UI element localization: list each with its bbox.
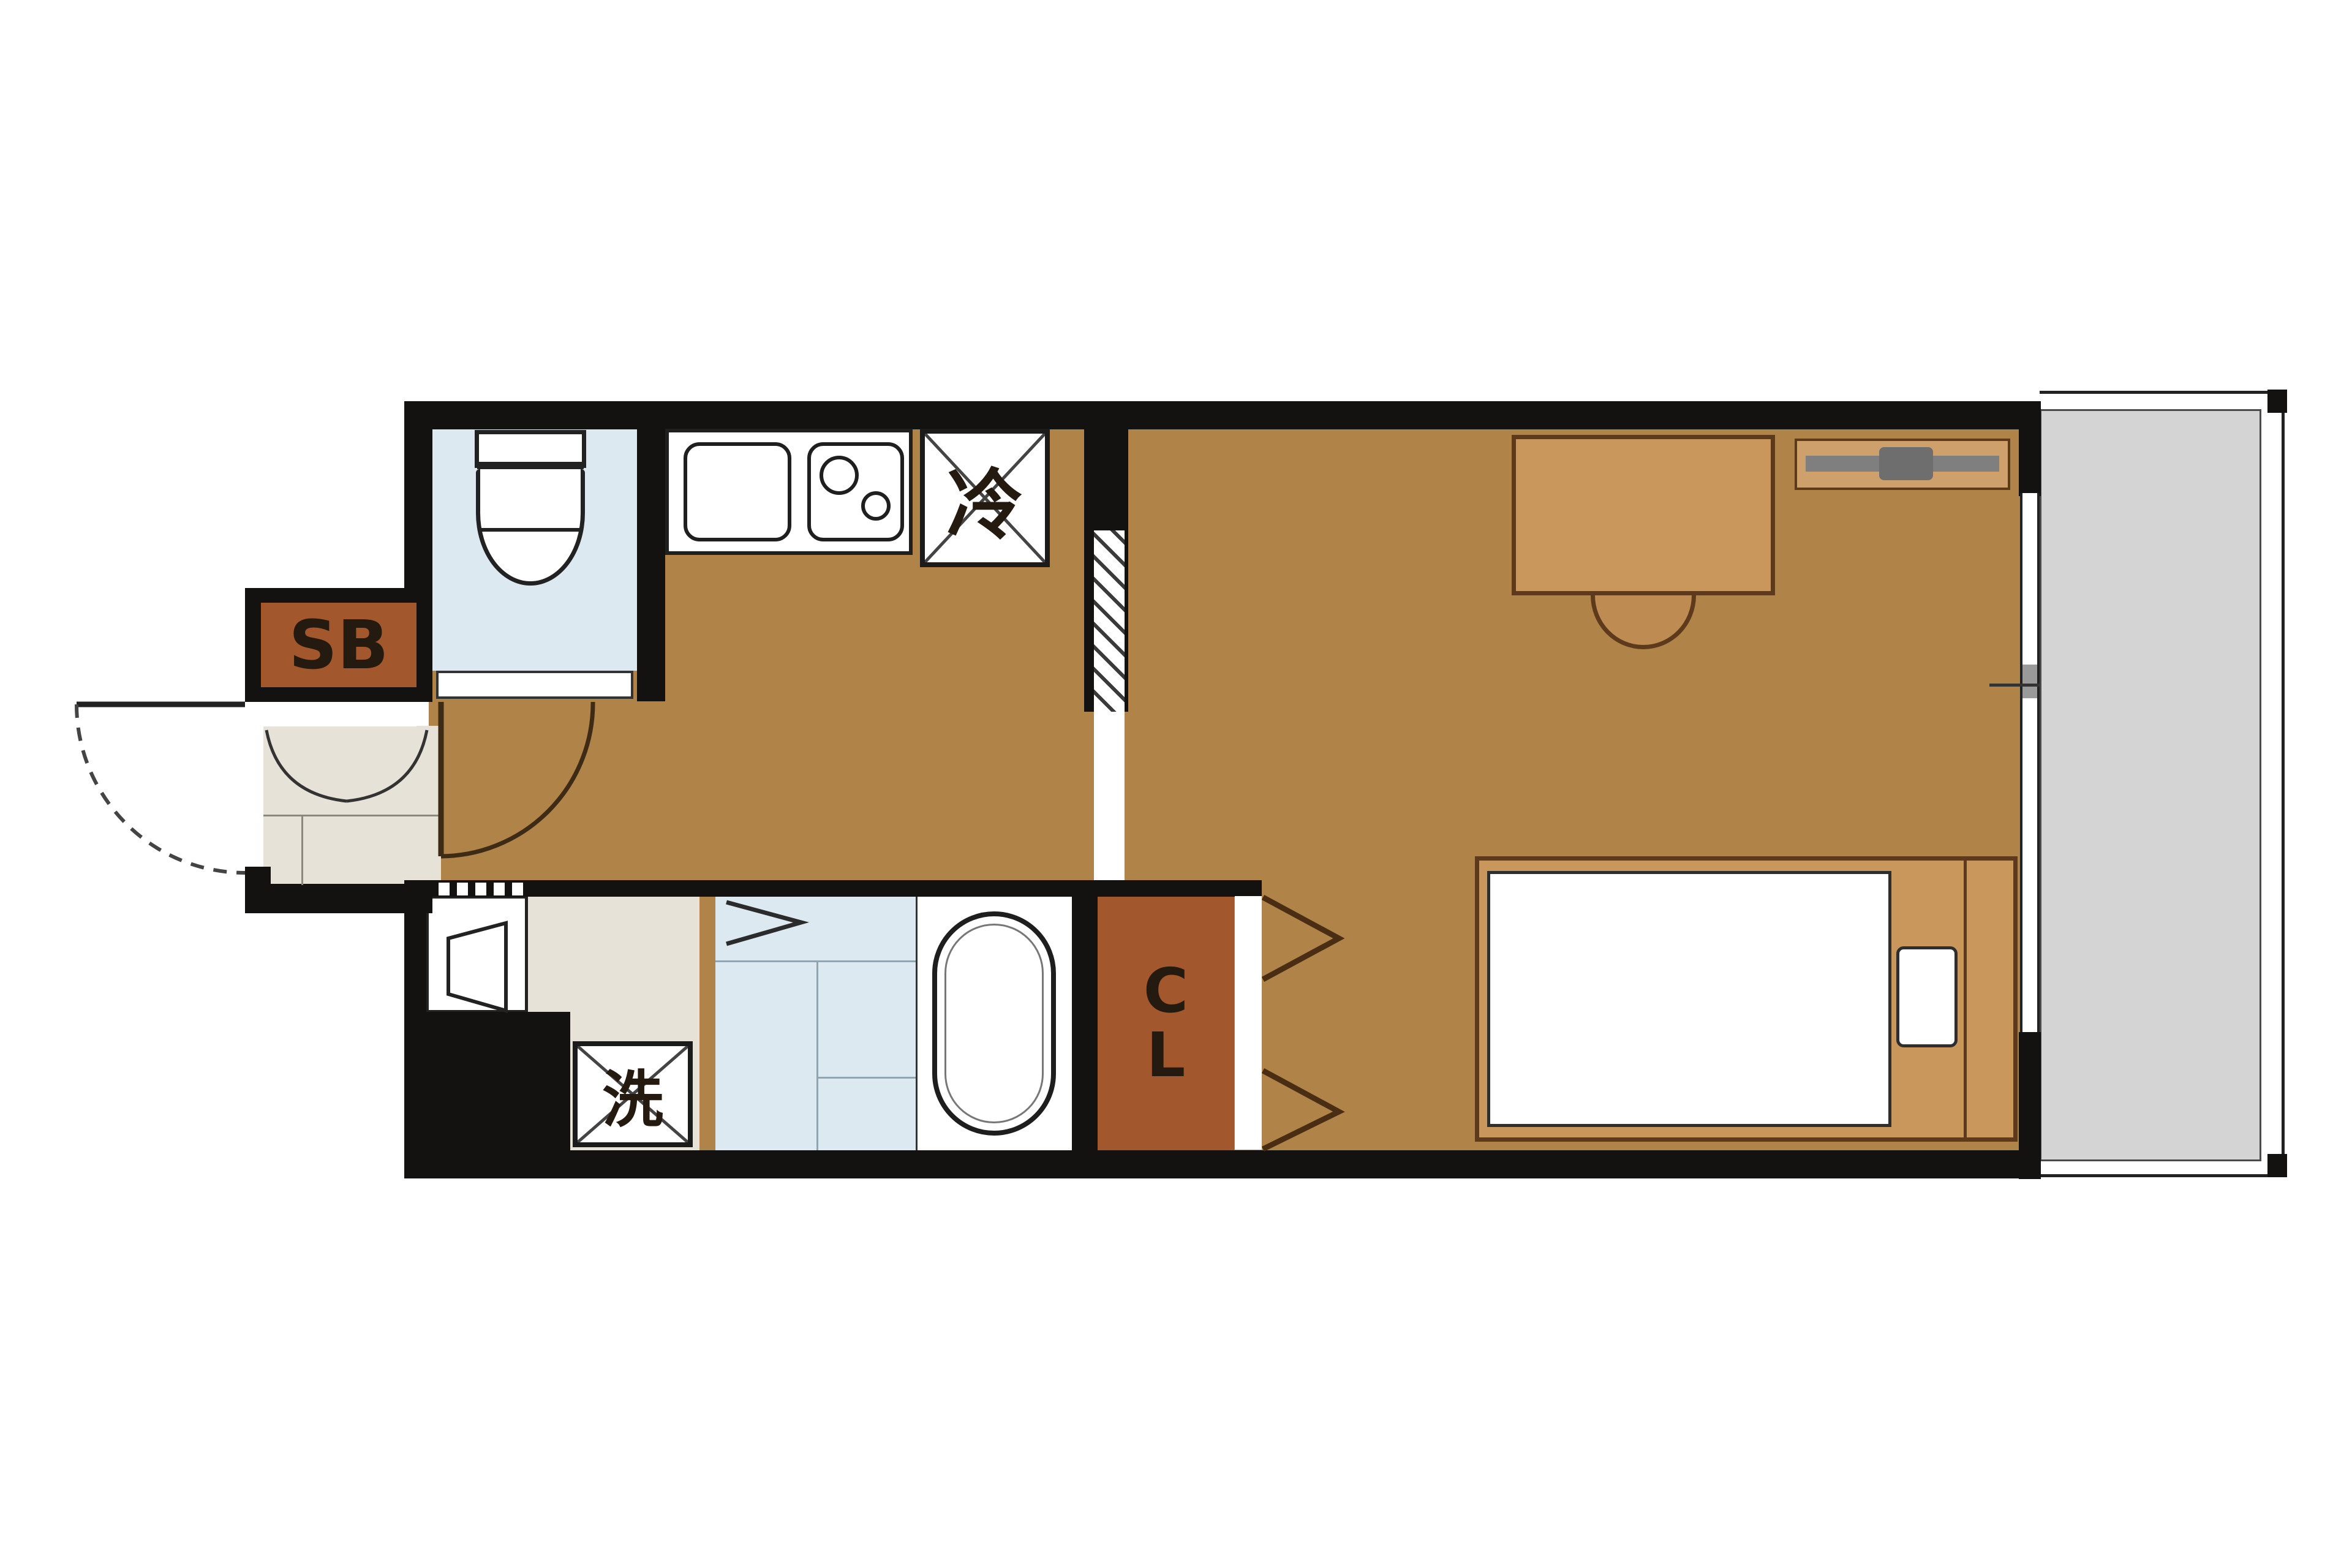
refrigerator-box: 冷 <box>920 429 1050 567</box>
entrance-step-line-h <box>263 815 441 816</box>
toilet-tank-lid-line <box>477 462 584 469</box>
wall-top <box>404 401 2041 429</box>
wall-bottom <box>404 1150 2041 1178</box>
bathtub <box>932 911 1056 1136</box>
wall-door-jamb <box>245 867 271 913</box>
bathroom-grid-line-v <box>816 960 818 1150</box>
entrance-step-line-v <box>301 815 303 885</box>
stove-burner-small <box>861 491 891 521</box>
washbasin-room <box>426 895 528 1013</box>
washing-machine-box: 洗 <box>573 1041 693 1147</box>
floor-plan: C L SB 冷 <box>0 0 2352 1568</box>
balcony <box>2040 409 2261 1161</box>
front-door-swing-arc <box>77 704 245 873</box>
entrance-floor <box>263 726 441 885</box>
kitchen-sink <box>684 442 791 541</box>
shoe-box-label: SB <box>288 606 388 684</box>
shoe-box-counter <box>261 702 417 726</box>
window-handle-line <box>1989 684 2040 687</box>
stove <box>807 442 904 541</box>
bathroom-grid-line-h2 <box>816 1077 916 1079</box>
wall-toilet-right <box>637 429 665 701</box>
balcony-window <box>2020 493 2040 1032</box>
bathroom-floor <box>715 895 916 1150</box>
tv-center-unit <box>1879 447 1933 480</box>
sliding-door-kitchen <box>1094 530 1125 880</box>
balcony-corner-post-bottom <box>2267 1154 2287 1177</box>
wall-right-upper-stub <box>2019 429 2041 496</box>
wall-bottomrow-top <box>404 880 1262 897</box>
wall-left-lower <box>404 880 426 1178</box>
bed-pillow <box>1896 946 1958 1047</box>
bathroom-grid-line-h <box>715 960 916 962</box>
shoe-box: SB <box>261 603 417 687</box>
closet-label-c: C <box>1144 959 1188 1023</box>
closet-door-track <box>1235 896 1262 1150</box>
stove-burner-large <box>820 456 859 495</box>
wall-entrance-bottom <box>245 884 432 913</box>
toilet-seat-line <box>480 528 581 532</box>
wall-tub-closet <box>1072 895 1098 1151</box>
desk <box>1512 435 1775 595</box>
bed-mattress <box>1487 871 1891 1127</box>
bed-frame-line <box>1964 859 1967 1139</box>
closet-label-l: L <box>1147 1023 1186 1087</box>
refrigerator-label: 冷 <box>947 443 1023 554</box>
window-sash-mark <box>2022 665 2037 698</box>
washing-machine-label: 洗 <box>602 1050 663 1139</box>
lavatory-threshold <box>439 883 530 895</box>
wall-left-upper <box>404 401 432 597</box>
balcony-corner-post-top <box>2267 390 2287 413</box>
sliding-door-hatch <box>1094 530 1125 712</box>
toilet-door <box>436 671 633 699</box>
void-block-bottom-left <box>426 1012 570 1178</box>
bathtub-inner-contour <box>944 924 1044 1123</box>
closet-cl: C L <box>1098 895 1234 1150</box>
